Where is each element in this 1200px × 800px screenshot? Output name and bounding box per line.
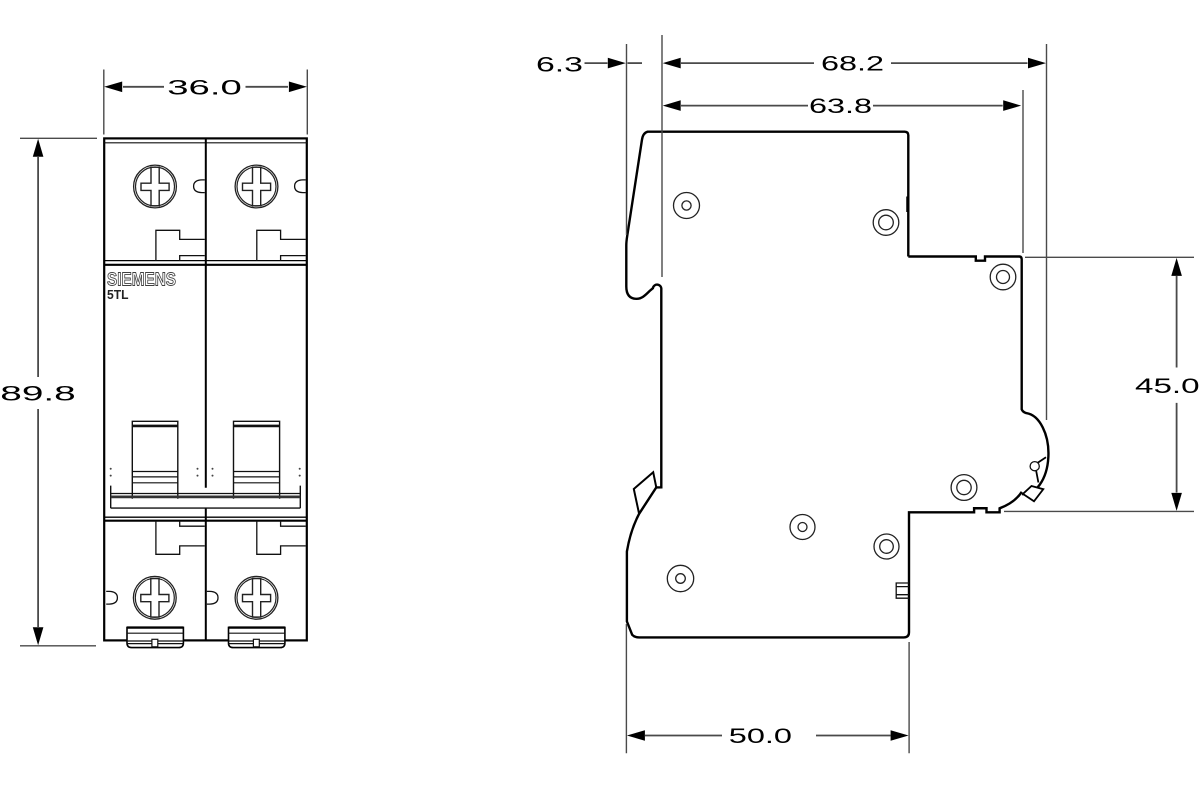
svg-text:36.0: 36.0 [167,77,242,100]
svg-text:63.8: 63.8 [809,95,872,118]
svg-text:6.3: 6.3 [536,54,583,77]
svg-text:5TL: 5TL [107,288,129,302]
svg-text:45.0: 45.0 [1135,375,1200,398]
svg-text:50.0: 50.0 [729,725,792,748]
svg-text:68.2: 68.2 [821,53,884,76]
svg-text:SIEMENS: SIEMENS [107,269,176,290]
svg-text:89.8: 89.8 [0,383,76,406]
